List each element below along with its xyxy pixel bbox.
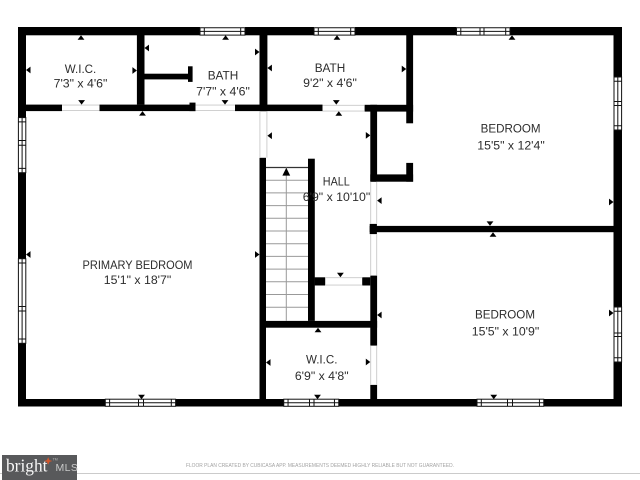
svg-text:15'5" x 12'4": 15'5" x 12'4" (477, 139, 544, 153)
svg-text:bright: bright (6, 455, 48, 475)
svg-text:6'9" x 4'8": 6'9" x 4'8" (295, 369, 349, 383)
svg-text:BEDROOM: BEDROOM (481, 122, 541, 136)
svg-text:BATH: BATH (208, 68, 239, 82)
svg-text:W.I.C.: W.I.C. (65, 62, 97, 76)
svg-text:W.I.C.: W.I.C. (306, 353, 338, 367)
svg-text:BATH: BATH (315, 61, 346, 75)
svg-text:7'3" x 4'6": 7'3" x 4'6" (54, 77, 108, 91)
svg-text:MLS: MLS (56, 462, 79, 474)
svg-text:TM: TM (53, 457, 58, 461)
svg-text:FLOOR PLAN CREATED BY CUBICASA: FLOOR PLAN CREATED BY CUBICASA APP. MEAS… (186, 463, 454, 469)
svg-text:7'7" x 4'6": 7'7" x 4'6" (196, 84, 250, 98)
svg-text:BEDROOM: BEDROOM (475, 307, 535, 321)
svg-text:9'2" x 4'6": 9'2" x 4'6" (303, 76, 357, 90)
svg-text:15'1" x 18'7": 15'1" x 18'7" (104, 273, 171, 287)
svg-text:15'5" x 10'9": 15'5" x 10'9" (472, 324, 539, 338)
svg-text:HALL: HALL (323, 174, 350, 188)
svg-text:6'9" x 10'10": 6'9" x 10'10" (303, 190, 370, 204)
svg-text:PRIMARY BEDROOM: PRIMARY BEDROOM (83, 258, 193, 272)
